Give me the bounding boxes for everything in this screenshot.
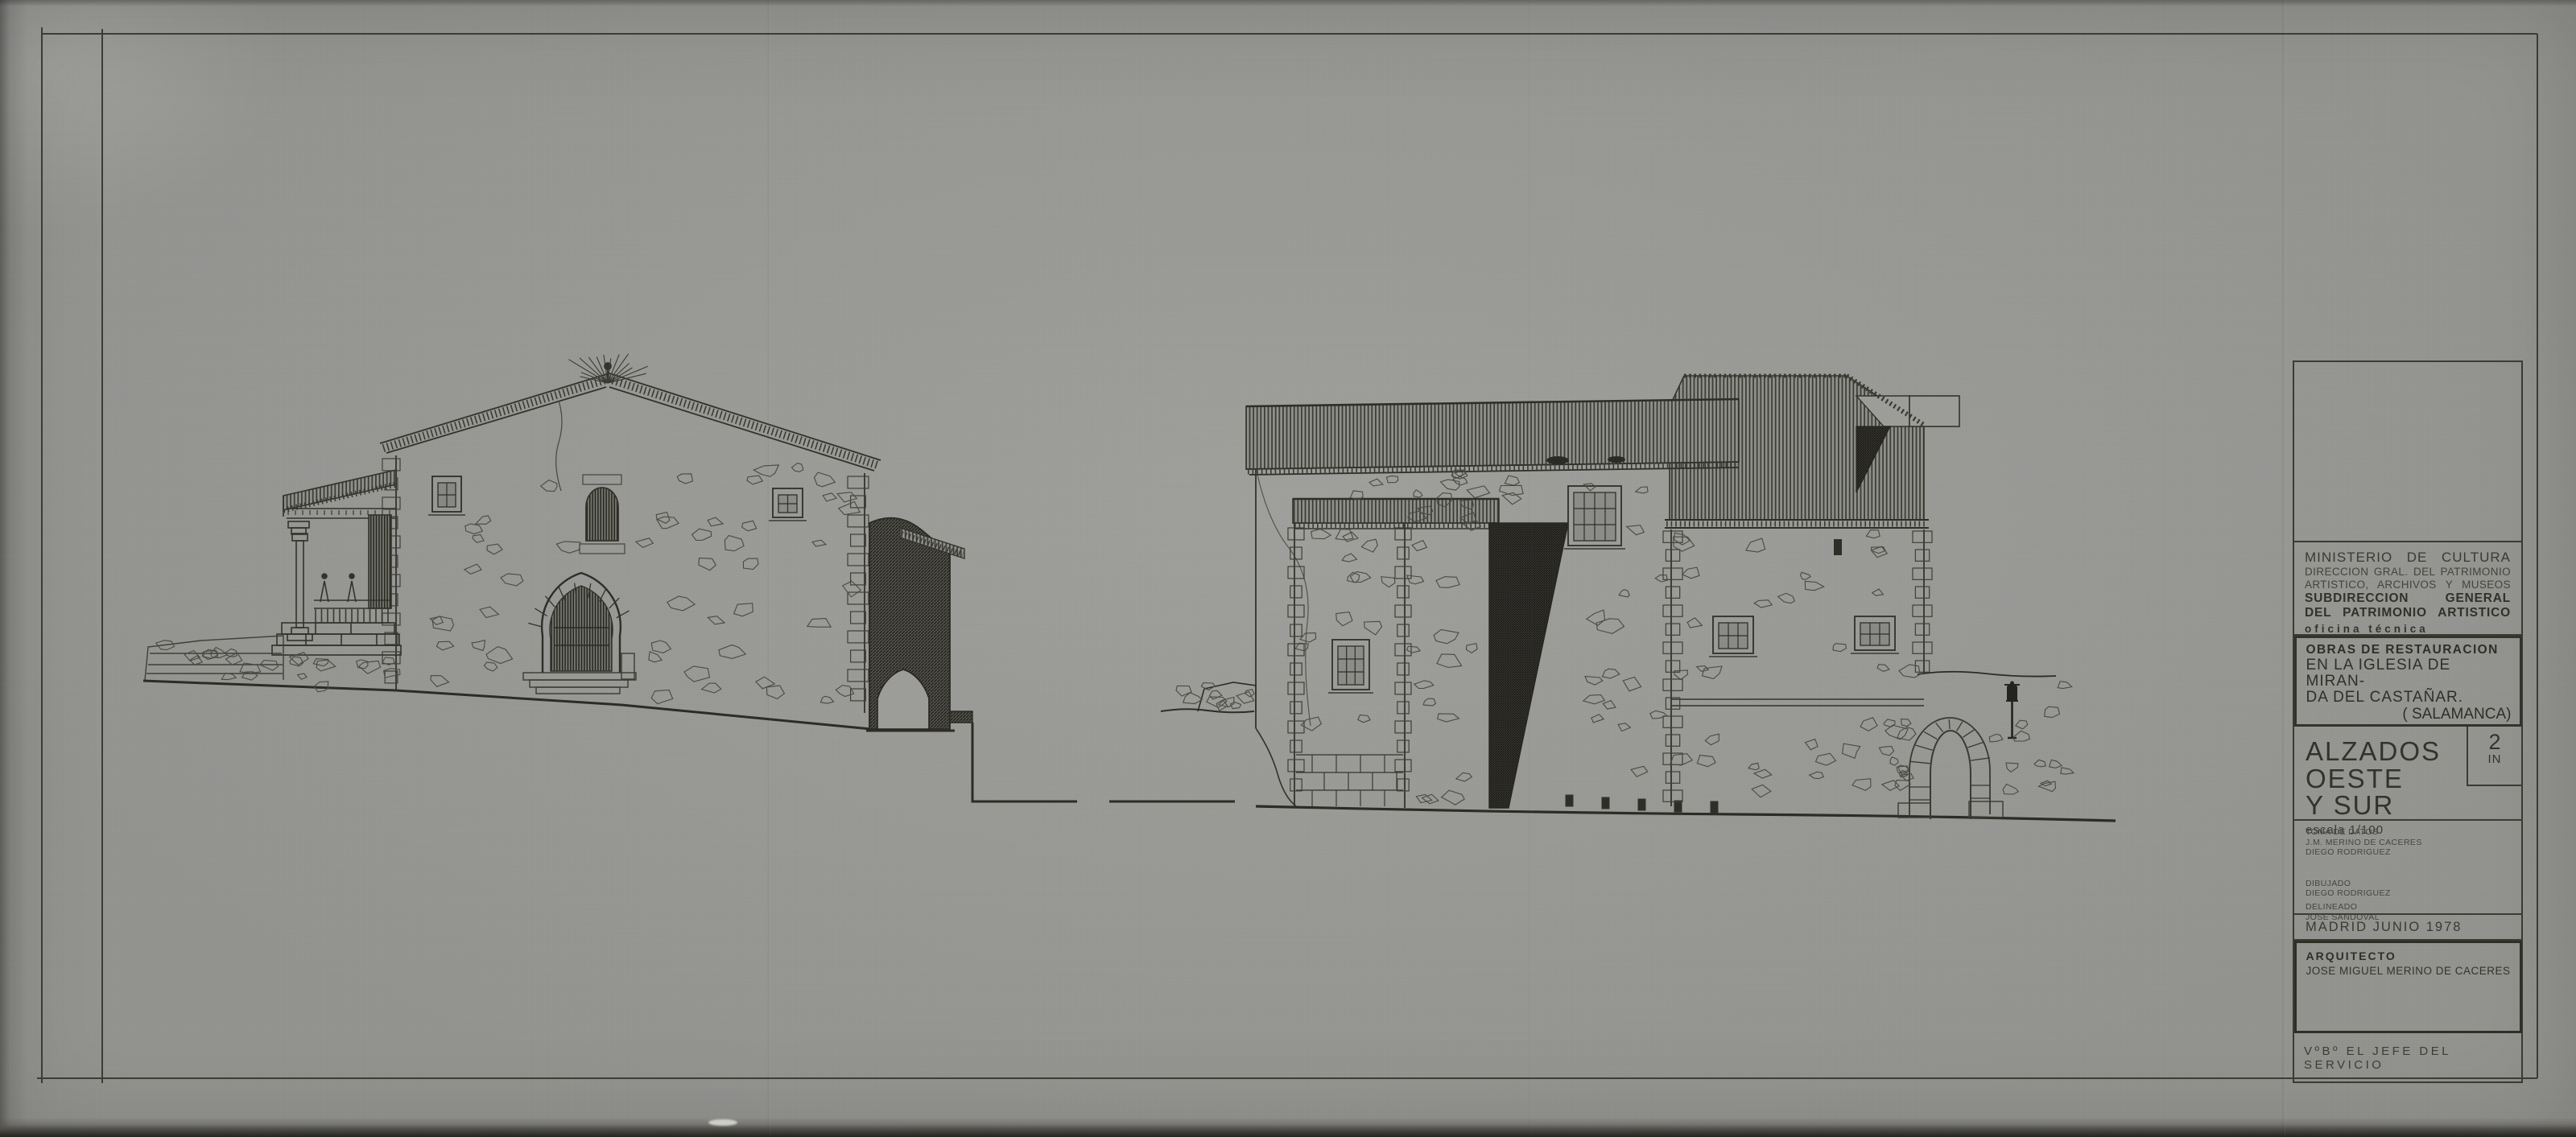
technical-office-label: oficina técnica [2305, 623, 2511, 635]
ministry-direction-line2: ARTISTICO, ARCHIVOS Y MUSEOS [2305, 579, 2511, 591]
architect-name: JOSE MIGUEL MERINO DE CACERES [2306, 965, 2520, 977]
drawing-title-section: ALZADOS OESTE Y SUR escala 1/100 2 IN [2294, 727, 2521, 821]
credit-role-drawn: DIBUJADO [2306, 879, 2521, 889]
west-elevation-drawing [143, 354, 1235, 801]
credit-role-survey: TOMA DE DATOS [2306, 827, 2521, 838]
approval-label: VºBº EL JEFE DEL SERVICIO [2304, 1044, 2451, 1072]
ministry-direction-line1: DIRECCION GRAL. DEL PATRIMONIO [2305, 566, 2511, 579]
west-ruin-arch [866, 518, 972, 731]
west-gable-roof [380, 354, 881, 471]
sheet-number: 2 [2468, 731, 2521, 753]
south-gate-arch [1898, 718, 2003, 819]
credit-draftsman: DIEGO RODRIGUEZ [2306, 888, 2521, 899]
title-block: MINISTERIO DE CULTURA DIRECCION GRAL. DE… [2293, 360, 2523, 1083]
project-line1: OBRAS DE RESTAURACION [2306, 643, 2513, 657]
south-tower [1663, 529, 1932, 806]
approval-section: VºBº EL JEFE DEL SERVICIO [2294, 1033, 2521, 1081]
drawing-title-line2: Y SUR [2306, 792, 2521, 819]
west-niche [580, 475, 625, 554]
west-ground-line [143, 681, 1235, 801]
west-wall [382, 401, 869, 713]
project-line2: EN LA IGLESIA DE MIRAN- [2306, 657, 2513, 690]
date-section: MADRID JUNIO 1978 [2294, 915, 2521, 941]
drawing-sheet: MINISTERIO DE CULTURA DIRECCION GRAL. DE… [0, 0, 2576, 1137]
ministry-name: MINISTERIO DE CULTURA [2305, 550, 2511, 566]
project-line3: DA DEL CASTAÑAR. [2306, 690, 2513, 706]
sheet-art [0, 0, 2576, 1137]
ministry-section: MINISTERIO DE CULTURA DIRECCION GRAL. DE… [2294, 542, 2521, 636]
drawing-date: MADRID JUNIO 1978 [2306, 920, 2462, 934]
title-block-stamp-box [2294, 362, 2521, 542]
west-porch [272, 470, 401, 692]
west-portal-door [523, 573, 636, 694]
south-porch [1288, 499, 1568, 808]
subdirection-line1: SUBDIRECCION GENERAL [2305, 591, 2511, 606]
credit-role-delineated: DELINEADO [2306, 902, 2521, 912]
south-long-roof [1246, 399, 1739, 475]
sheet-border [37, 27, 2537, 1083]
street-lamp-icon [2004, 682, 2020, 739]
architect-label: ARQUITECTO [2306, 950, 2520, 962]
sheet-number-cell: 2 IN [2467, 727, 2521, 786]
credit-surveyor-2: DIEGO RODRIGUEZ [2306, 847, 2521, 858]
project-province: ( SALAMANCA) [2306, 706, 2513, 723]
credits-section: TOMA DE DATOS J.M. MERINO DE CACERES DIE… [2294, 821, 2521, 915]
sheet-code: IN [2468, 753, 2521, 765]
project-title-box: OBRAS DE RESTAURACION EN LA IGLESIA DE M… [2294, 636, 2522, 727]
west-retaining-wall [145, 636, 283, 680]
subdirection-line2: DEL PATRIMONIO ARTISTICO [2305, 606, 2511, 620]
architect-box: ARQUITECTO JOSE MIGUEL MERINO DE CACERES [2294, 941, 2522, 1033]
south-elevation-drawing [1161, 376, 2116, 821]
credit-surveyor-1: J.M. MERINO DE CACERES [2306, 838, 2521, 848]
